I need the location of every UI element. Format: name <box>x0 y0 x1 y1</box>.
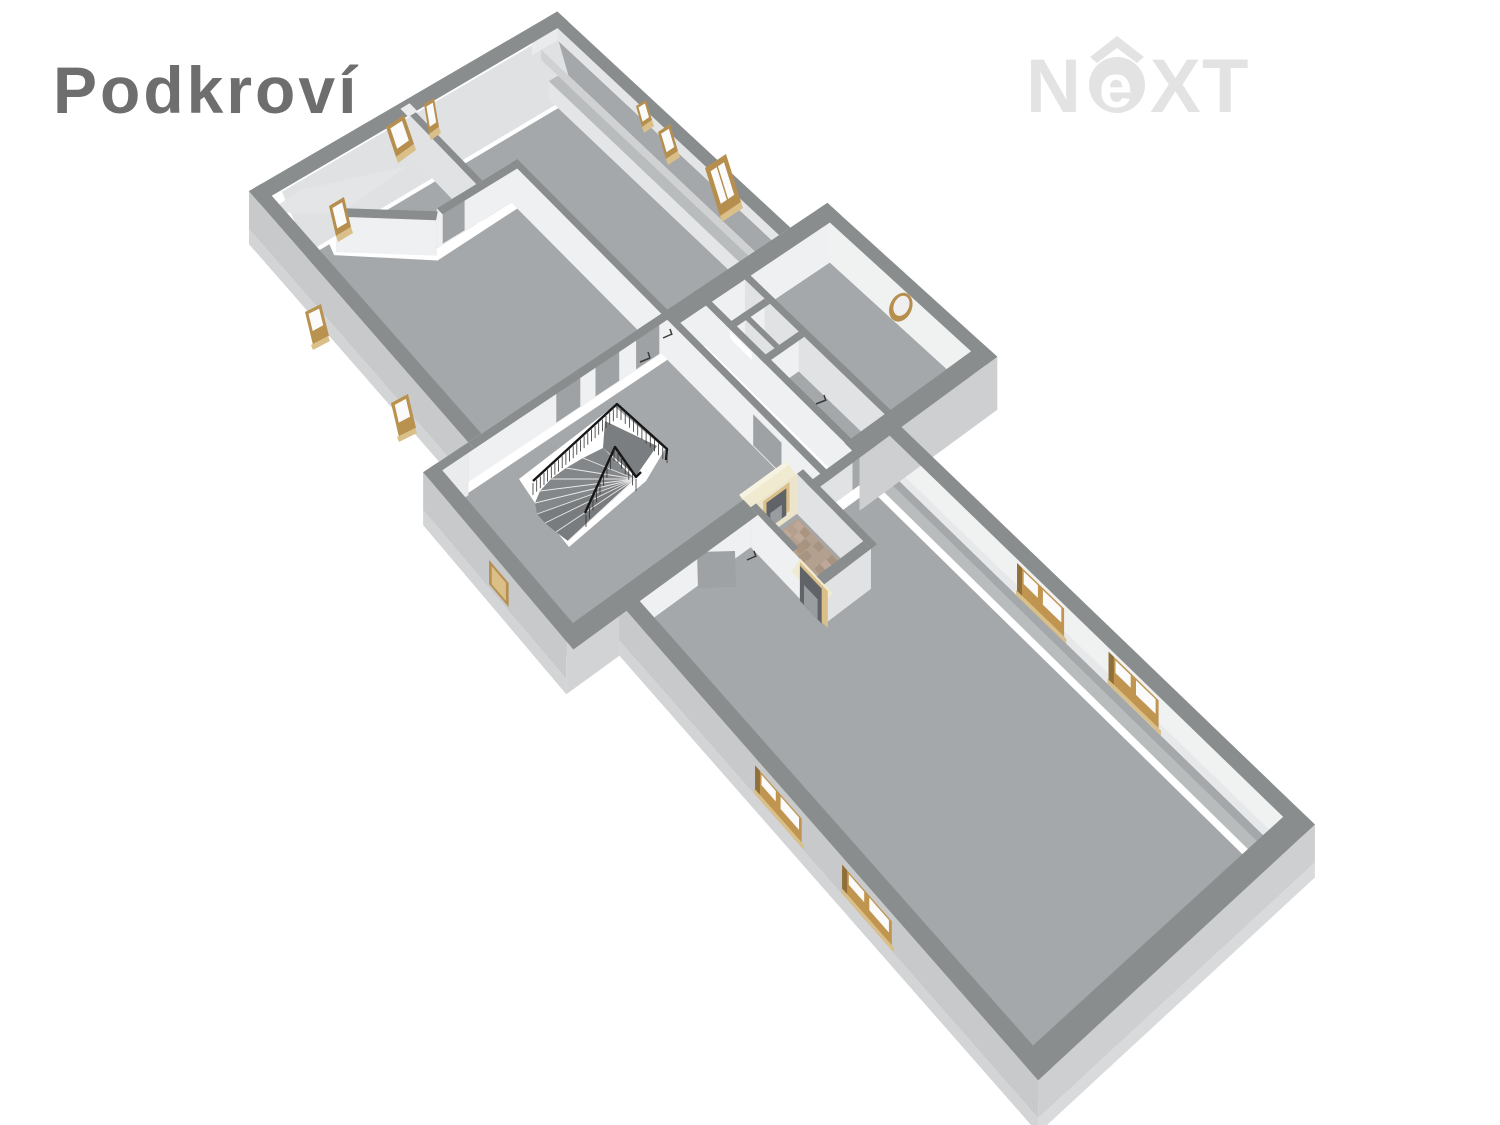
svg-text:N: N <box>1026 44 1081 129</box>
svg-text:e: e <box>1099 53 1132 120</box>
svg-text:X: X <box>1150 44 1201 129</box>
svg-text:T: T <box>1202 44 1248 129</box>
